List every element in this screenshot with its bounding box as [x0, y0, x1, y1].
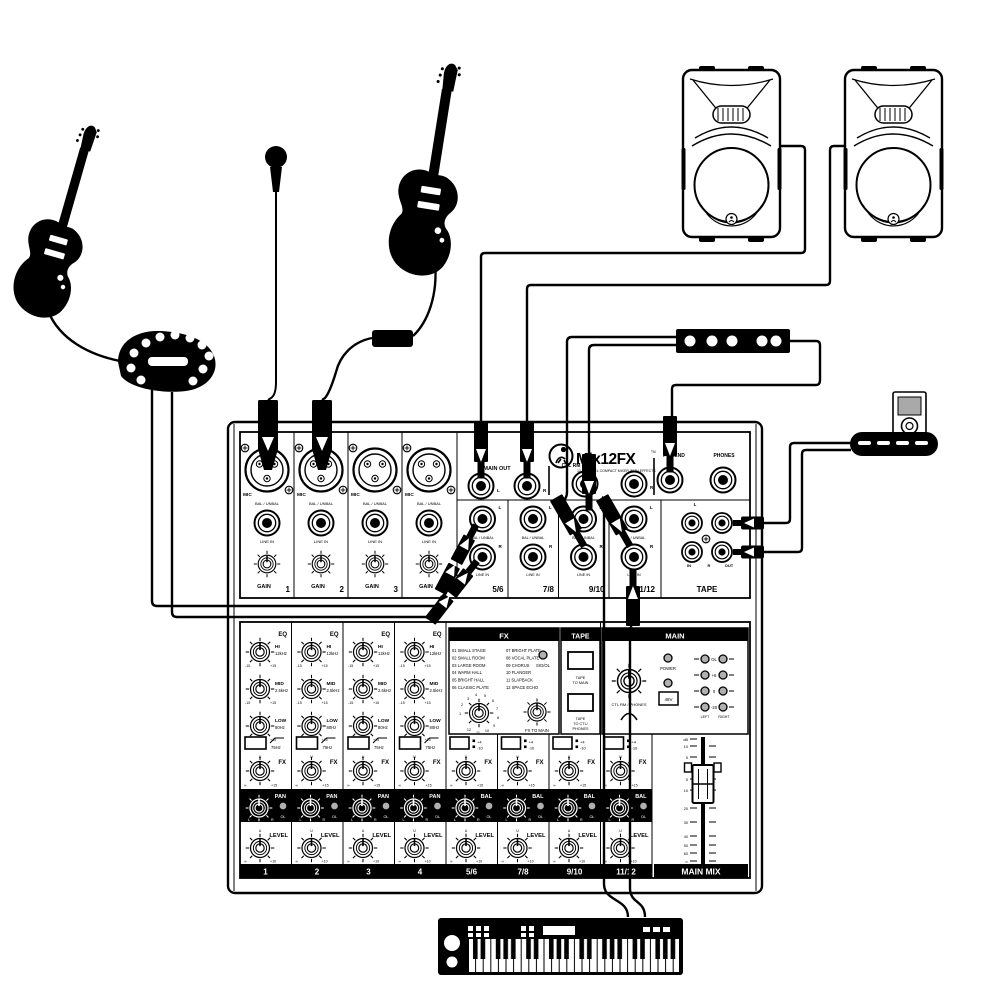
pan-l-mark: L — [351, 818, 353, 822]
strip-number: 4 — [418, 868, 423, 877]
fx-mark: ∞ — [244, 784, 247, 788]
switch-mark — [524, 740, 527, 743]
pan-r-mark: R — [323, 818, 326, 822]
tape-out-r-cable — [764, 450, 851, 552]
tape-to-main-button — [568, 652, 593, 669]
fx-mark: +15 — [426, 784, 432, 788]
ol-label: OL — [486, 815, 491, 819]
player-dock — [850, 432, 938, 456]
tape-in-label: IN — [687, 563, 691, 568]
pan-l-mark: L — [403, 818, 405, 822]
eq-low-label: LOW — [327, 718, 339, 724]
bal-r-mark: R — [580, 818, 583, 822]
bal-l-mark: L — [454, 818, 456, 822]
line-level-switch — [553, 737, 572, 749]
main-mix-label: MAIN MIX — [681, 867, 721, 877]
low-cut-label: 75Hz — [271, 745, 281, 750]
fx-mark: ∞ — [553, 784, 556, 788]
eq-label: EQ — [381, 632, 390, 638]
eq-low-freq: 80Hz — [378, 725, 388, 730]
ol-led — [279, 802, 287, 810]
switch-mark — [524, 746, 527, 749]
eq-low-label: LOW — [275, 718, 287, 724]
level-mark: +10 — [425, 860, 431, 864]
level-mark: +10 — [322, 860, 328, 864]
meter-left-label: LEFT — [701, 715, 711, 719]
line-level-switch — [605, 737, 624, 749]
level-u-mark: U — [619, 829, 622, 833]
fx-label: FX — [381, 760, 389, 766]
fx-knob — [503, 757, 532, 786]
eq-mark: +15 — [270, 664, 276, 668]
level-u-mark: U — [362, 829, 365, 833]
sig-ol-label: SIG/OL — [536, 663, 551, 668]
eq-mark: +15 — [270, 701, 276, 705]
minus10-label: -10 — [477, 746, 484, 751]
gain-knob — [308, 551, 334, 577]
pan-l-mark: L — [300, 818, 302, 822]
selector-num: 11 — [476, 731, 480, 735]
fx-knob — [349, 757, 378, 786]
level-mark: +10 — [270, 860, 276, 864]
fx-mark: ∞ — [347, 784, 350, 788]
main-section: MAIN CTL RM / PHONES POWER 48V OL +6 0 — [602, 628, 748, 734]
line-level-switch — [502, 737, 521, 749]
level-mark: ∞ — [296, 860, 299, 864]
bal-unbal-label: BAL / UNBAL — [417, 501, 442, 506]
eq-mid-freq: 2.5kHz — [275, 688, 288, 693]
eq-low-freq: 80Hz — [275, 725, 285, 730]
plus4-label: +4 — [477, 740, 482, 745]
screw-icon — [285, 486, 293, 494]
minus10-label: -10 — [529, 746, 536, 751]
level-mark: +10 — [476, 860, 482, 864]
tape-r-mark: R — [708, 563, 711, 568]
eq-mid-knob — [349, 675, 378, 704]
pan-label: PAN — [378, 794, 389, 800]
fx-preset: 11 SLAPBACK — [506, 678, 533, 683]
fx-preset: 08 VOCAL PLATE — [506, 655, 539, 660]
fx-pedal — [118, 331, 216, 392]
meter-right-label: RIGHT — [718, 715, 730, 719]
level-mark: ∞ — [502, 860, 505, 864]
selector-num: 8 — [497, 716, 499, 720]
level-mark: +10 — [373, 860, 379, 864]
level-u-mark: U — [413, 829, 416, 833]
tape-l-mark: L — [694, 502, 697, 507]
bal-unbal-label: BAL / UNBAL — [255, 501, 280, 506]
eq-mark: +15 — [322, 664, 328, 668]
eq-hi-freq: 12kHz — [378, 651, 390, 656]
tape-header: TAPE — [571, 634, 589, 641]
fx-label: FX — [587, 760, 595, 766]
fx-mark: ∞ — [502, 784, 505, 788]
selector-num: 9 — [493, 724, 495, 728]
ol-led — [382, 802, 390, 810]
ol-label: OL — [280, 815, 285, 819]
mic-label: MIC — [351, 492, 360, 498]
pan-label: PAN — [275, 794, 286, 800]
bal-label: BAL — [635, 794, 647, 800]
mic-xlr-plug — [258, 400, 278, 470]
mic-label: MIC — [297, 492, 306, 498]
tape-to-phones-label: PHONES — [572, 727, 589, 731]
level-knob — [503, 834, 532, 863]
plus4-label: +4 — [632, 740, 637, 745]
guitar2-xlr-plug — [312, 400, 332, 470]
selector-num: 12 — [467, 728, 471, 732]
gain-knob — [362, 551, 388, 577]
line-in-r-jack — [571, 545, 596, 570]
fx-label: FX — [433, 760, 441, 766]
low-cut-button — [297, 737, 318, 749]
fx-header: FX — [499, 632, 509, 641]
level-label: LEVEL — [269, 833, 288, 839]
level-label: LEVEL — [372, 833, 391, 839]
channel-number: 5/6 — [492, 585, 504, 594]
level-knob — [555, 834, 584, 863]
bal-unbal-label: BAL / UNBAL — [363, 501, 388, 506]
left-speaker — [682, 66, 782, 242]
pan-r-mark: R — [426, 818, 429, 822]
level-u-mark: U — [465, 829, 468, 833]
bal-r-mark: R — [632, 818, 635, 822]
screw-icon — [393, 486, 401, 494]
strip-number: 9/10 — [567, 868, 583, 877]
fader-mark: 20 — [684, 807, 688, 811]
level-u-mark: U — [516, 829, 519, 833]
ol-led — [331, 802, 339, 810]
bal-unbal-label: BAL / UNBAL — [522, 536, 545, 540]
phantom-label: 48V — [664, 697, 672, 702]
eq-label: EQ — [278, 632, 287, 638]
fx-processor — [676, 329, 790, 353]
fx-mark: +15 — [374, 784, 380, 788]
microphone — [265, 146, 287, 192]
eq-hi-label: HI — [430, 644, 435, 650]
line-in-jack — [363, 511, 388, 536]
tape-to-phones-label: TO CTL/ — [573, 722, 588, 726]
channel-number: 9/10 — [589, 585, 605, 594]
strip-number: 1 — [263, 868, 268, 877]
fx-preset: 04 WARM HALL — [452, 670, 483, 675]
fx-mark: +15 — [529, 784, 535, 788]
eq-mid-label: MID — [275, 681, 284, 687]
level-mark: ∞ — [244, 860, 247, 864]
bal-r-mark: R — [529, 818, 532, 822]
level-u-mark: U — [568, 829, 571, 833]
tape-to-phones-button — [568, 694, 593, 711]
eq-low-knob — [349, 712, 378, 741]
fx-preset: 10 FLANGER — [506, 670, 531, 675]
eq-mark: -15 — [400, 701, 405, 705]
switch-mark — [576, 746, 579, 749]
pan-label: PAN — [429, 794, 440, 800]
eq-mid-label: MID — [327, 681, 336, 687]
fx-preset: 03 LARGE ROOM — [452, 663, 486, 668]
eq-low-label: LOW — [378, 718, 390, 724]
power-led — [664, 654, 672, 662]
level-mark: ∞ — [450, 860, 453, 864]
ctl-rm-out-r-jack — [622, 472, 647, 497]
strip-number: 2 — [315, 868, 320, 877]
fx-preset: 09 CHORUS — [506, 663, 530, 668]
bal-unbal-label: BAL / UNBAL — [309, 501, 334, 506]
level-label: LEVEL — [630, 833, 649, 839]
eq-mid-freq: 2.5kHz — [430, 688, 443, 693]
level-knob — [246, 834, 275, 863]
bal-l-mark: L — [557, 818, 559, 822]
fader-mark: 60 — [684, 852, 688, 856]
low-cut-button — [400, 737, 421, 749]
screw-icon — [339, 486, 347, 494]
guitar2-cable-b — [322, 338, 372, 400]
eq-mark: -15 — [400, 664, 405, 668]
mic-label: MIC — [405, 492, 414, 498]
line-level-switch — [450, 737, 469, 749]
inline-connector — [372, 330, 413, 347]
fader-mark: ∞ — [685, 860, 688, 864]
meter-label: -20 — [711, 705, 718, 710]
eq-hi-label: HI — [275, 644, 280, 650]
line-in-jack — [309, 511, 334, 536]
fx-to-main-knob — [524, 699, 551, 726]
eq-mark: -15 — [348, 664, 353, 668]
low-cut-button — [245, 737, 266, 749]
fader-mark: 50 — [684, 844, 688, 848]
fader-mark: dB — [683, 738, 688, 742]
gain-label: GAIN — [419, 584, 433, 590]
ol-led — [588, 802, 596, 810]
level-label: LEVEL — [475, 833, 494, 839]
fx-preset: 02 SMALL ROOM — [452, 655, 485, 660]
ol-label: OL — [435, 815, 440, 819]
low-cut-label: 75Hz — [426, 745, 436, 750]
tape-to-main-label: TO MAIN — [573, 681, 589, 685]
fx-mark: +15 — [477, 784, 483, 788]
ol-label: OL — [332, 815, 337, 819]
fx-preset: 12 SPACE ECHO — [506, 685, 538, 690]
fx-preset: 06 CLASSIC PLATE — [452, 685, 489, 690]
bal-unbal-label: BAL / UNBAL — [471, 536, 494, 540]
main-header: MAIN — [665, 632, 684, 641]
fader-mark: 5 — [686, 778, 688, 782]
keyboard-display — [543, 926, 575, 935]
screw-icon — [295, 444, 303, 452]
bal-r-mark: R — [477, 818, 480, 822]
plus4-label: +4 — [580, 740, 585, 745]
fx-mark: ∞ — [450, 784, 453, 788]
level-mark: +10 — [528, 860, 534, 864]
left-guitar — [6, 117, 117, 324]
line-in-r-jack — [622, 545, 647, 570]
fader-mark: 10 — [684, 789, 688, 793]
eq-mid-freq: 2.5kHz — [327, 688, 340, 693]
low-cut-label: 75Hz — [323, 745, 333, 750]
level-knob — [400, 834, 429, 863]
hookup-diagram: EQ HI 12kHz -15 +15 MID 2.5kHz -15 +15 L… — [0, 0, 1000, 1000]
pan-r-mark: R — [271, 818, 274, 822]
eq-mark: -15 — [297, 664, 302, 668]
channel-number: 3 — [394, 585, 399, 594]
bal-label: BAL — [584, 794, 596, 800]
right-speaker — [844, 66, 944, 242]
fx-knob — [400, 757, 429, 786]
eq-mark: -15 — [245, 664, 250, 668]
fx-label: FX — [330, 760, 338, 766]
main-out-label: MAIN OUT — [483, 466, 511, 472]
tape-to-phones-label: TAPE — [576, 717, 586, 721]
level-knob — [452, 834, 481, 863]
tape-to-main-label: TAPE — [576, 676, 586, 680]
fx-mark: +15 — [632, 784, 638, 788]
level-label: LEVEL — [321, 833, 340, 839]
eq-label: EQ — [330, 632, 339, 638]
mixer: MIC BAL / UNBAL LINE IN GAIN 1 MIC BAL /… — [228, 422, 762, 893]
phones-jack — [711, 468, 736, 493]
ol-led — [434, 802, 442, 810]
bal-label: BAL — [532, 794, 544, 800]
switch-mark — [473, 740, 476, 743]
main-out-l-mark: L — [497, 488, 500, 493]
fx-label: FX — [536, 760, 544, 766]
ol-led — [537, 802, 545, 810]
strip-number: 5/6 — [466, 868, 478, 877]
fx-mark: +15 — [323, 784, 329, 788]
eq-low-label: LOW — [430, 718, 442, 724]
phantom-led — [664, 679, 672, 687]
low-cut-label: 75Hz — [374, 745, 384, 750]
eq-hi-knob — [297, 638, 326, 667]
channel-number: 7/8 — [543, 585, 555, 594]
level-u-mark: U — [310, 829, 313, 833]
fader-mark: 5 — [686, 756, 688, 760]
eq-hi-knob — [400, 638, 429, 667]
selector-num: 6 — [492, 699, 494, 703]
line-in-label: LINE IN — [368, 539, 382, 544]
minus10-label: -10 — [632, 746, 639, 751]
line-in-label: LINE IN — [476, 573, 490, 577]
sig-ol-led — [539, 651, 547, 659]
eq-hi-knob — [246, 638, 275, 667]
tape-section: TAPE TAPE TO MAIN TAPE TO CTL/ PHONES — [561, 628, 600, 734]
line-in-r-jack — [521, 545, 546, 570]
eq-mark: +15 — [373, 701, 379, 705]
keyboard-synth — [438, 918, 683, 975]
strip-number: 7/8 — [517, 868, 529, 877]
fx-mark: ∞ — [399, 784, 402, 788]
eq-label: EQ — [433, 632, 442, 638]
trademark: TM — [651, 450, 656, 454]
level-u-mark: U — [259, 829, 262, 833]
eq-mid-freq: 2.5kHz — [378, 688, 391, 693]
eq-hi-freq: 12kHz — [275, 651, 287, 656]
switch-mark — [576, 740, 579, 743]
tape-out-r-jack — [712, 542, 732, 562]
fx-to-main-label: FX TO MAIN — [525, 728, 549, 733]
screw-icon — [702, 535, 710, 543]
ol-label: OL — [538, 815, 543, 819]
lower-panel: EQ HI 12kHz -15 +15 MID 2.5kHz -15 +15 L… — [240, 622, 750, 878]
level-mark: ∞ — [399, 860, 402, 864]
screw-icon — [403, 444, 411, 452]
mp3-screen — [898, 397, 921, 415]
tape-out-l-jack — [712, 513, 732, 533]
pan-r-mark: R — [374, 818, 377, 822]
fader-mark: 30 — [684, 821, 688, 825]
mackie-running-man-icon — [561, 447, 566, 452]
eq-mark: +15 — [322, 701, 328, 705]
eq-mark: +15 — [373, 664, 379, 668]
meter-label: OL — [711, 657, 717, 662]
eq-hi-label: HI — [327, 644, 332, 650]
gain-label: GAIN — [365, 584, 379, 590]
right-guitar — [384, 58, 479, 280]
eq-mark: -15 — [297, 701, 302, 705]
guitar1-cable — [48, 311, 120, 361]
screw-icon — [241, 444, 249, 452]
eq-hi-freq: 12kHz — [327, 651, 339, 656]
ol-label: OL — [641, 815, 646, 819]
line-in-label: LINE IN — [526, 573, 540, 577]
line-in-l-jack — [521, 507, 546, 532]
selector-num: 7 — [496, 707, 498, 711]
tape-label: TAPE — [697, 585, 718, 594]
l-label: L — [499, 505, 502, 510]
eq-low-knob — [297, 712, 326, 741]
fader-mark: 10 — [684, 745, 688, 749]
eq-low-knob — [246, 712, 275, 741]
bal-label: BAL — [481, 794, 493, 800]
l-label: L — [549, 505, 552, 510]
minus10-label: -10 — [580, 746, 587, 751]
gain-label: GAIN — [257, 584, 271, 590]
line-in-label: LINE IN — [577, 573, 591, 577]
line-in-label: LINE IN — [260, 539, 274, 544]
fx-mark: +15 — [580, 784, 586, 788]
channel-number: 1 — [286, 585, 291, 594]
eq-hi-freq: 12kHz — [430, 651, 442, 656]
eq-mark: +15 — [425, 701, 431, 705]
eq-low-knob — [400, 712, 429, 741]
mp3-wheel — [902, 418, 918, 434]
gain-knob — [416, 551, 442, 577]
fx-preset: 01 SMALL STAGE — [452, 648, 486, 653]
fx-preset: 07 BRIGHT PLATE — [506, 648, 541, 653]
fx-knob — [297, 757, 326, 786]
eq-mark: +15 — [425, 664, 431, 668]
power-label: POWER — [660, 666, 676, 671]
selector-num: 4 — [475, 693, 477, 697]
level-knob — [297, 834, 326, 863]
level-knob — [349, 834, 378, 863]
fx-label: FX — [484, 760, 492, 766]
eq-mark: -15 — [245, 701, 250, 705]
fader-mark: 40 — [684, 835, 688, 839]
line-in-jack — [255, 511, 280, 536]
plus4-label: +4 — [529, 740, 534, 745]
line-in-jack — [417, 511, 442, 536]
pan-label: PAN — [326, 794, 337, 800]
tape-out-l-cable — [764, 443, 851, 523]
selector-num: 2 — [461, 703, 463, 707]
ol-led — [640, 802, 648, 810]
selector-num: 10 — [485, 729, 489, 733]
mic-xlr-jack — [408, 449, 451, 492]
bal-l-mark: L — [506, 818, 508, 822]
strip-number: 3 — [366, 868, 371, 877]
level-mark: ∞ — [553, 860, 556, 864]
